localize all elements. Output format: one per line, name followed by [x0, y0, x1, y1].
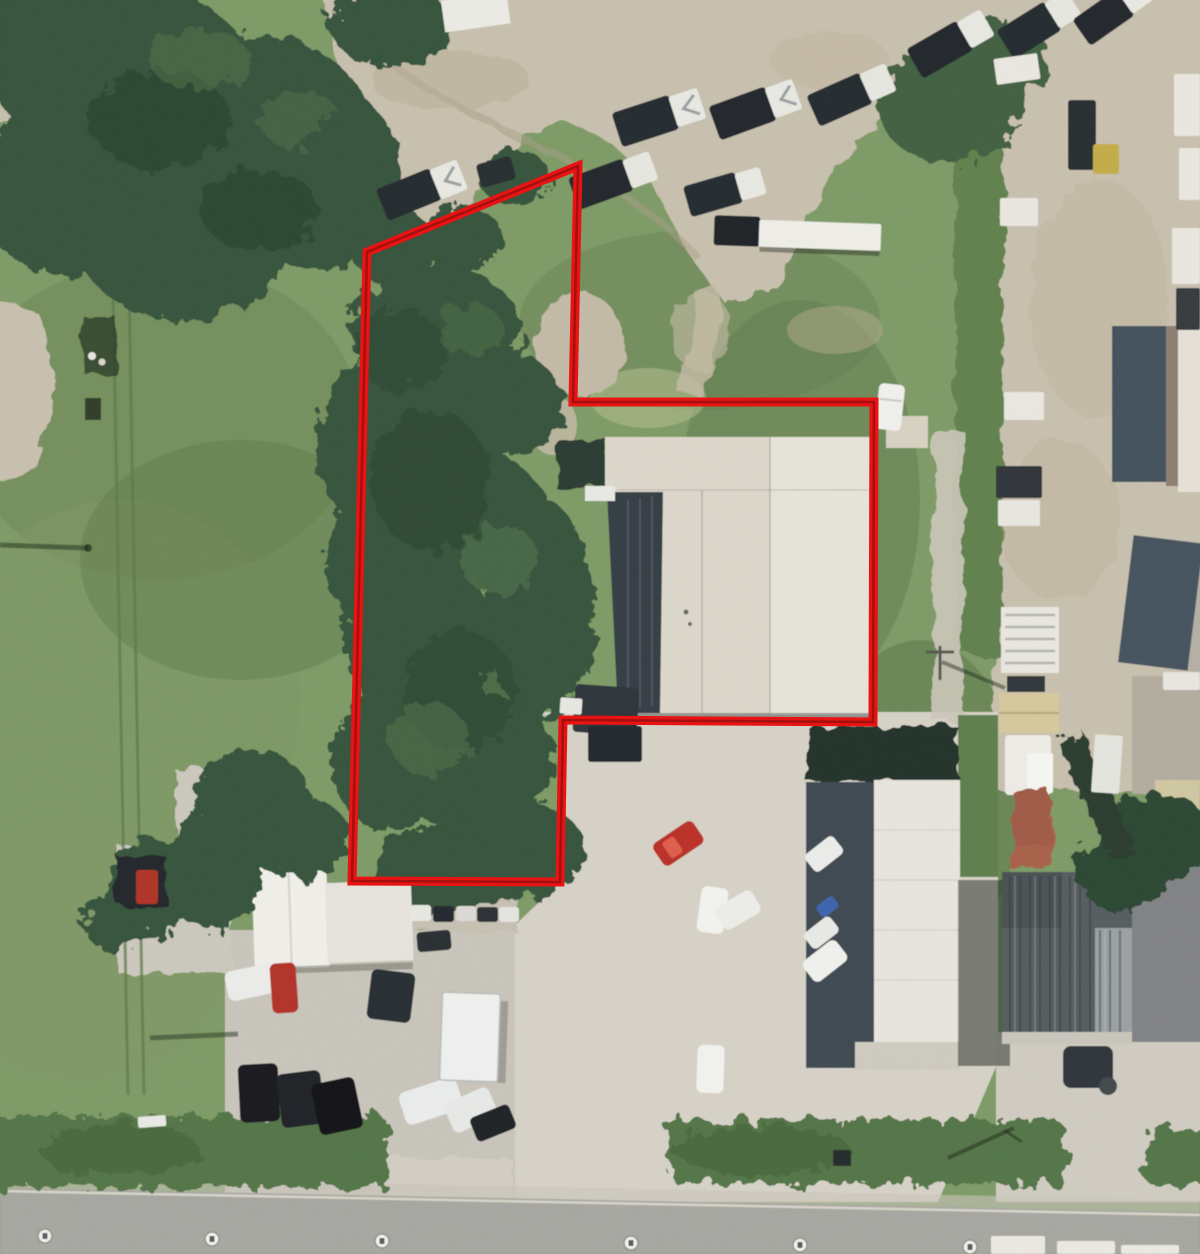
photo-grain — [0, 0, 1200, 1254]
aerial-map[interactable] — [0, 0, 1200, 1254]
aerial-photo — [0, 0, 1200, 1254]
